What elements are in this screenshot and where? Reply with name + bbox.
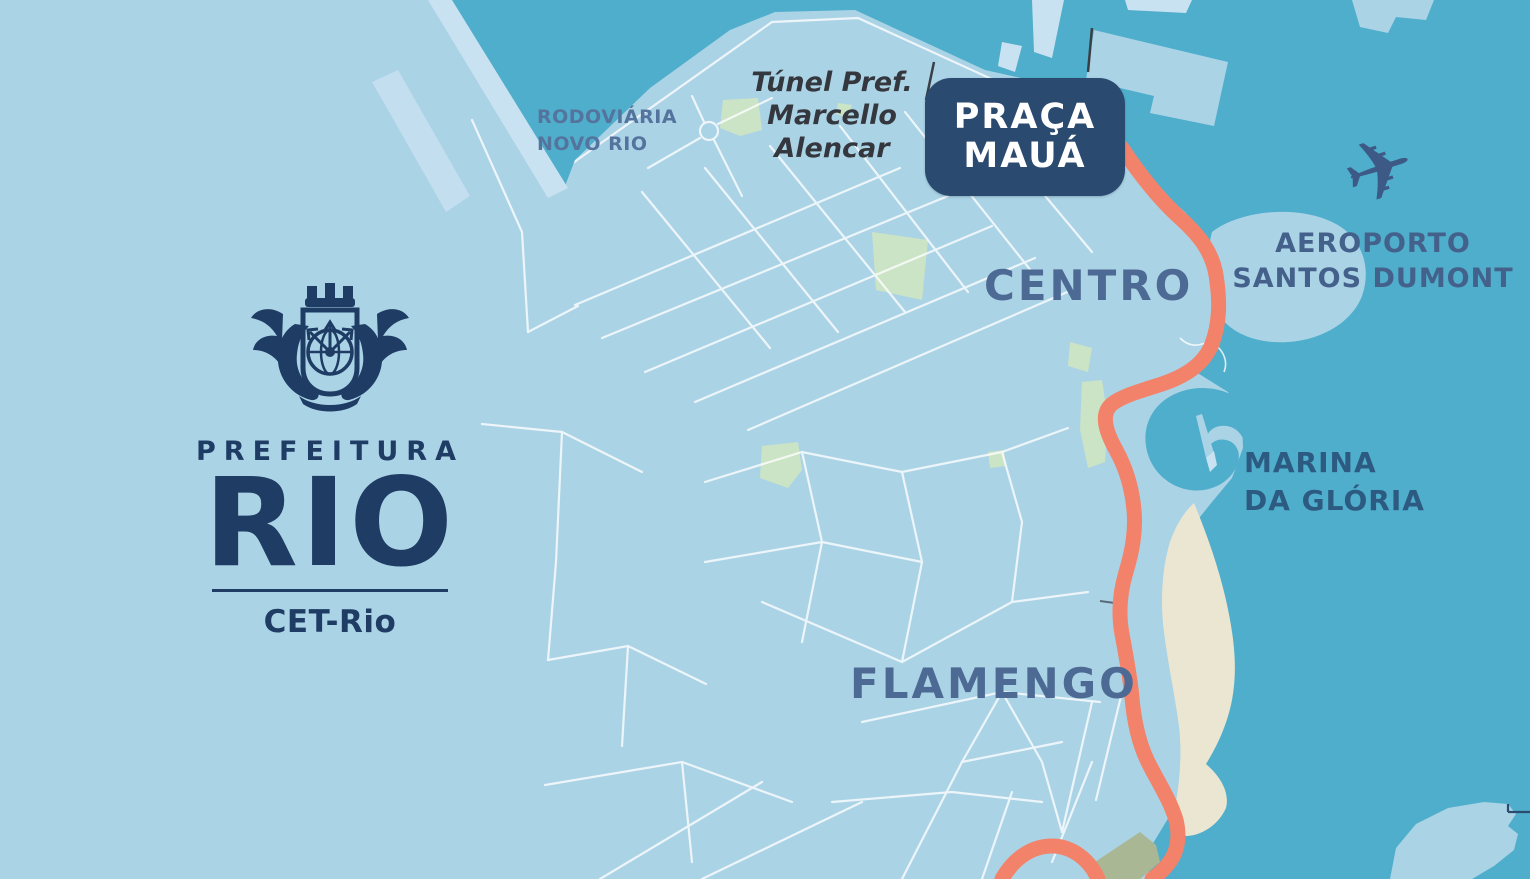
map-canvas: RODOVIÁRIANOVO RIO Túnel Pref.MarcelloAl… bbox=[0, 0, 1530, 879]
label-centro: CENTRO bbox=[984, 261, 1193, 310]
praca-maua-badge: PRAÇA MAUÁ bbox=[925, 78, 1125, 196]
label-flamengo: FLAMENGO bbox=[850, 659, 1138, 708]
prefeitura-rio-logo: PREFEITURA RIO CET-Rio bbox=[180, 276, 480, 640]
badge-line2: MAUÁ bbox=[963, 139, 1086, 174]
badge-line1: PRAÇA bbox=[954, 100, 1096, 135]
label-aeroporto-santos-dumont: AEROPORTOSANTOS DUMONT bbox=[1222, 226, 1524, 296]
label-tunel-marcello-alencar: Túnel Pref.MarcelloAlencar bbox=[722, 66, 942, 165]
label-marina-da-gloria: MARINADA GLÓRIA bbox=[1244, 444, 1425, 520]
label-rodoviaria: RODOVIÁRIANOVO RIO bbox=[537, 104, 677, 158]
logo-cet-rio-text: CET-Rio bbox=[180, 604, 480, 640]
rio-coat-of-arms-icon bbox=[243, 276, 418, 426]
logo-rio-text: RIO bbox=[180, 459, 480, 587]
